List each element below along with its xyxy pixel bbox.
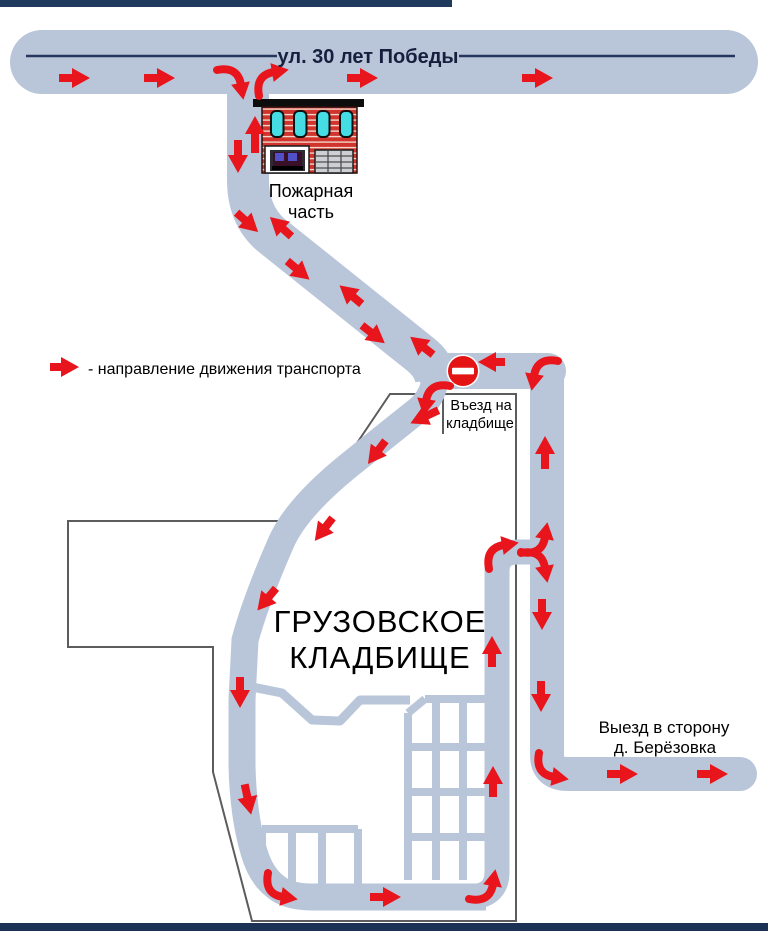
cemetery-traffic-map: ул. 30 лет Победы Пожарная часть - напра… — [0, 0, 768, 931]
street-name-label: ул. 30 лет Победы — [278, 46, 459, 68]
fire-station-building-icon — [253, 99, 364, 173]
cemetery-name-line1: ГРУЗОВСКОЕ — [274, 604, 487, 639]
building-sectional-door — [315, 150, 353, 173]
legend-text: - направление движения транспорта — [88, 361, 361, 378]
fire-station-label-line1: Пожарная — [269, 181, 354, 201]
top-border-bar — [0, 0, 452, 7]
cemetery-name-line2: КЛАДБИЩЕ — [289, 640, 470, 675]
entrance-label-line1: Въезд на — [450, 398, 512, 414]
fire-station-label-line2: часть — [288, 202, 334, 222]
bottom-border-bar — [0, 923, 768, 931]
exit-label-line1: Выезд в сторону — [599, 718, 730, 737]
traffic-scheme-page: ул. 30 лет Победы Пожарная часть - напра… — [0, 0, 768, 931]
building-garage-firetruck — [265, 146, 309, 173]
legend-arrow — [50, 357, 79, 377]
entrance-label-line2: кладбище — [446, 416, 514, 432]
building-roof — [253, 99, 364, 107]
exit-label-line2: д. Берёзовка — [614, 738, 717, 757]
road-east-berezovka — [547, 373, 740, 774]
